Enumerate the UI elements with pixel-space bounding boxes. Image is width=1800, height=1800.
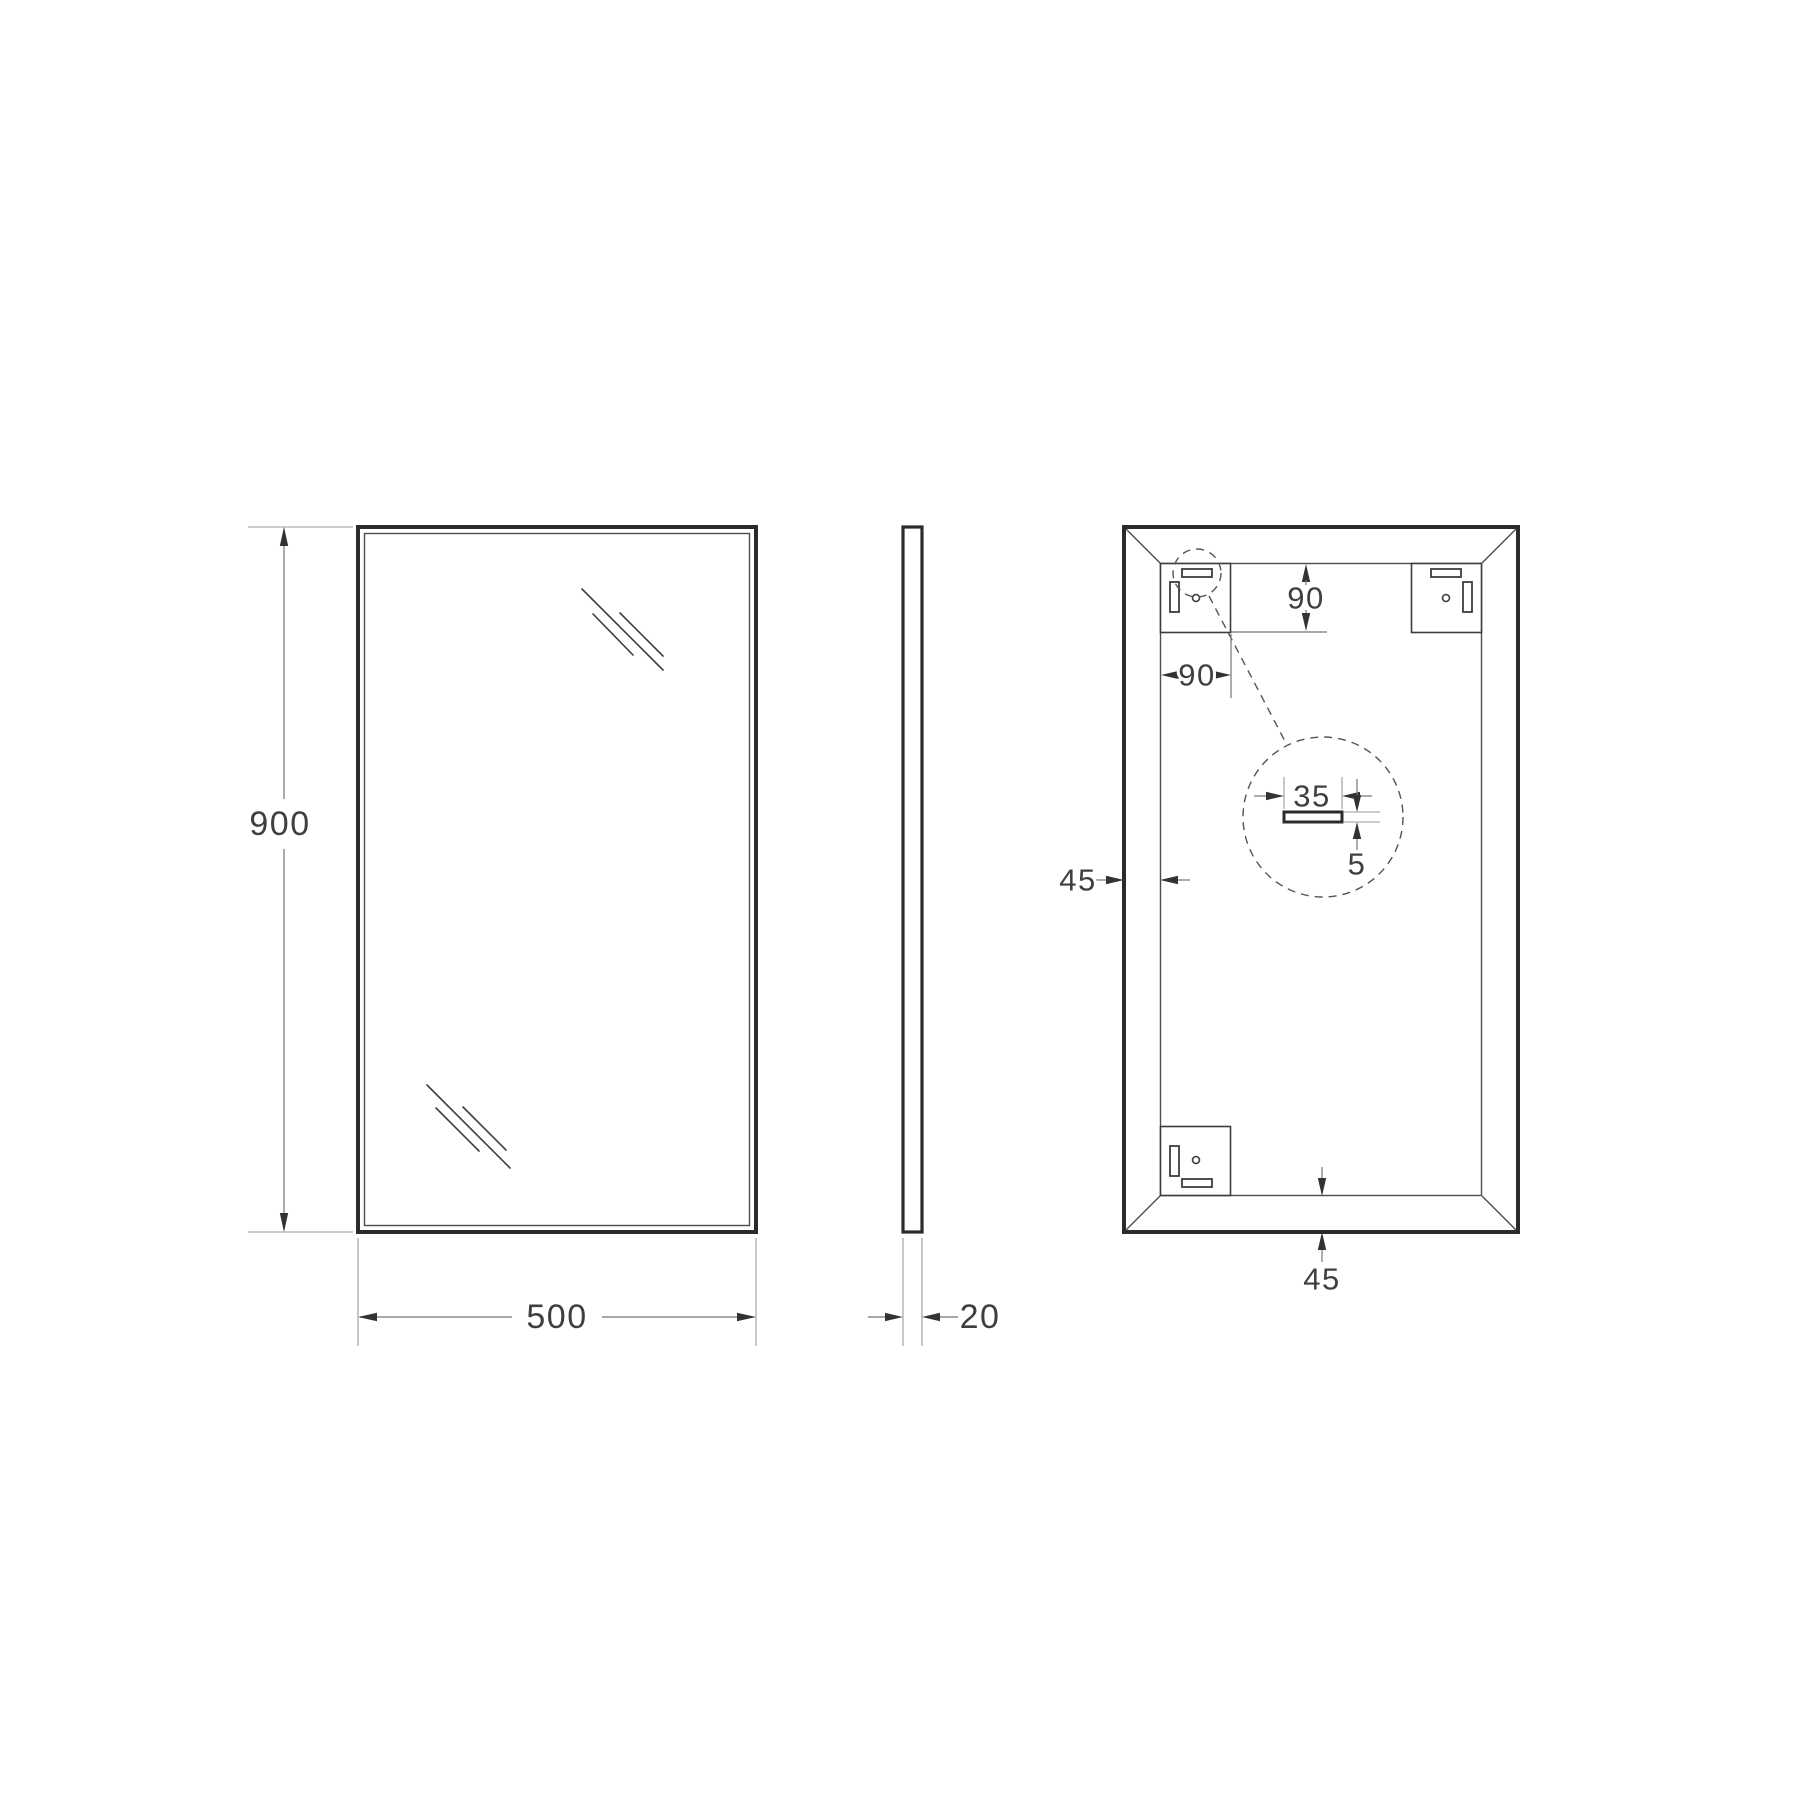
screw-hole [1443, 595, 1450, 602]
arrowhead-up [1318, 1232, 1326, 1250]
back-top-offset-label: 90 [1287, 581, 1324, 616]
back-frame-left-label: 45 [1059, 863, 1096, 898]
keyhole-slot [1284, 812, 1342, 822]
side-thickness-dimension: 20 [868, 1238, 1000, 1346]
front-width-dimension: 500 [358, 1238, 756, 1346]
hanger-slot-vertical [1463, 582, 1472, 612]
arrowhead-left [358, 1313, 377, 1321]
mirror-outline [358, 527, 756, 1232]
hanger-bracket-bottom-left [1161, 1127, 1231, 1196]
hanger-bracket-top-right [1412, 564, 1482, 633]
front-height-dimension: 900 [248, 527, 353, 1232]
back-frame-bottom-label: 45 [1303, 1262, 1340, 1297]
hanger-slot-vertical [1170, 1146, 1179, 1176]
front-view [358, 527, 756, 1232]
hanger-slot-horizontal [1182, 1179, 1212, 1187]
screw-hole [1193, 1157, 1200, 1164]
hanger-bracket-top-left [1161, 564, 1231, 633]
hanger-slot-horizontal [1182, 569, 1212, 577]
screw-hole [1193, 595, 1200, 602]
arrowhead-right [1106, 876, 1124, 884]
arrowhead-right [885, 1313, 903, 1321]
front-height-label: 900 [249, 805, 310, 843]
detail-slot-width-label: 35 [1293, 779, 1330, 814]
hanger-slot-horizontal [1431, 569, 1461, 577]
side-profile-outline [903, 527, 922, 1232]
detail-slot-height-label: 5 [1348, 847, 1367, 882]
arrowhead-up [280, 527, 288, 546]
back-view: 35 5 90 [1059, 527, 1518, 1297]
mirror-technical-drawing: 900 500 20 [0, 0, 1800, 1800]
side-view [903, 527, 922, 1232]
arrowhead-right [737, 1313, 756, 1321]
arrowhead-down [280, 1213, 288, 1232]
front-width-label: 500 [526, 1298, 587, 1336]
arrowhead-left [922, 1313, 940, 1321]
back-side-offset-label: 90 [1178, 658, 1215, 693]
side-thickness-label: 20 [960, 1298, 1001, 1336]
